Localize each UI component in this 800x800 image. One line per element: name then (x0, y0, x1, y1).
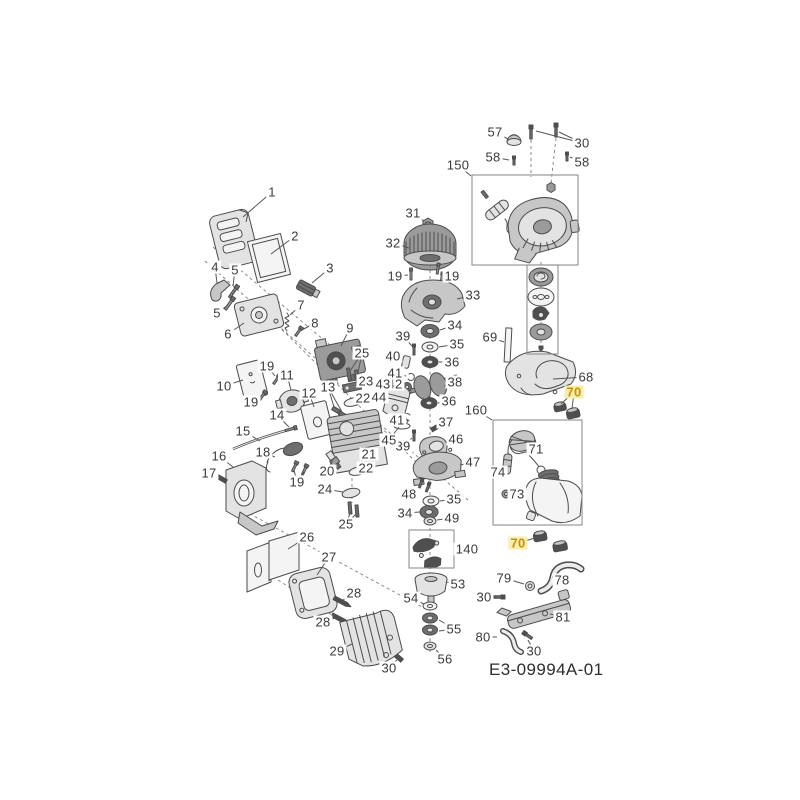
callout-15: 15 (233, 425, 252, 438)
callout-5: 5 (229, 264, 241, 277)
callout-9: 9 (344, 322, 356, 335)
callout-22: 22 (356, 462, 375, 475)
box-150-recoil-starter (472, 175, 578, 265)
callout-57: 57 (485, 126, 504, 139)
callout-36: 36 (442, 356, 461, 369)
callout-20: 20 (317, 465, 336, 478)
callout-8: 8 (309, 317, 321, 330)
callout-24: 24 (315, 483, 334, 496)
callout-31: 31 (403, 207, 422, 220)
callout-49: 49 (442, 512, 461, 525)
callout-10: 10 (214, 380, 233, 393)
callout-19: 19 (442, 270, 461, 283)
box-140-clutch (409, 530, 454, 568)
callout-44: 44 (369, 391, 388, 404)
callout-2: 2 (289, 230, 301, 243)
callout-54: 54 (401, 592, 420, 605)
callout-19: 19 (287, 476, 306, 489)
callout-46: 46 (446, 433, 465, 446)
diagram-overlay (0, 0, 800, 800)
callout-56: 56 (435, 653, 454, 666)
callout-160: 160 (463, 404, 490, 417)
callout-39: 39 (393, 330, 412, 343)
callout-68: 68 (576, 371, 595, 384)
callout-36: 36 (439, 395, 458, 408)
callout-11: 11 (278, 369, 296, 382)
callout-13: 13 (318, 381, 337, 394)
callout-58: 58 (572, 156, 591, 169)
callout-30: 30 (379, 662, 398, 675)
callout-38: 38 (445, 376, 464, 389)
callout-4: 4 (209, 261, 221, 274)
callout-47: 47 (463, 456, 482, 469)
callout-34: 34 (445, 319, 464, 332)
callout-26: 26 (297, 531, 316, 544)
callout-14: 14 (267, 409, 286, 422)
callout-48: 48 (399, 488, 418, 501)
callout-140: 140 (454, 543, 481, 556)
callout-53: 53 (448, 578, 467, 591)
callout-55: 55 (444, 623, 463, 636)
callout-18: 18 (253, 446, 272, 459)
callout-29: 29 (327, 645, 346, 658)
callout-79: 79 (494, 572, 513, 585)
callout-21: 21 (359, 448, 378, 461)
callout-70: 70 (508, 537, 527, 550)
callout-71: 71 (526, 443, 545, 456)
callout-3: 3 (324, 262, 336, 275)
exploded-parts-diagram: E3-09994A-01 123455678910111213141516171… (0, 0, 800, 800)
callout-19: 19 (385, 270, 404, 283)
callout-150: 150 (445, 159, 472, 172)
callout-30: 30 (572, 137, 591, 150)
callout-5: 5 (211, 307, 223, 320)
callout-34: 34 (395, 507, 414, 520)
callout-12: 12 (299, 387, 318, 400)
callout-1: 1 (266, 186, 278, 199)
callout-37: 37 (436, 416, 455, 429)
callout-73: 73 (507, 488, 526, 501)
callout-16: 16 (209, 450, 228, 463)
callout-35: 35 (447, 338, 466, 351)
callout-19: 19 (257, 360, 276, 373)
callout-17: 17 (199, 467, 218, 480)
callout-78: 78 (552, 574, 571, 587)
callout-25: 25 (336, 518, 355, 531)
callout-7: 7 (295, 299, 307, 312)
callout-70: 70 (564, 386, 583, 399)
callout-27: 27 (319, 551, 338, 564)
callout-41: 41 (387, 414, 406, 427)
callout-81: 81 (553, 611, 572, 624)
callout-35: 35 (444, 493, 463, 506)
callout-6: 6 (222, 328, 234, 341)
callout-40: 40 (383, 350, 402, 363)
callout-69: 69 (480, 331, 499, 344)
callout-28: 28 (313, 616, 332, 629)
callout-45: 45 (379, 434, 398, 447)
callout-28: 28 (344, 587, 363, 600)
callout-30: 30 (474, 591, 493, 604)
diagram-id-label: E3-09994A-01 (489, 661, 603, 680)
callout-74: 74 (488, 466, 507, 479)
callout-33: 33 (463, 289, 482, 302)
callout-32: 32 (383, 237, 402, 250)
callout-80: 80 (473, 631, 492, 644)
callout-19: 19 (241, 396, 260, 409)
callout-25: 25 (352, 347, 371, 360)
callout-30: 30 (524, 645, 543, 658)
box-starter-pulley-stack (527, 265, 558, 354)
callout-58: 58 (483, 151, 502, 164)
